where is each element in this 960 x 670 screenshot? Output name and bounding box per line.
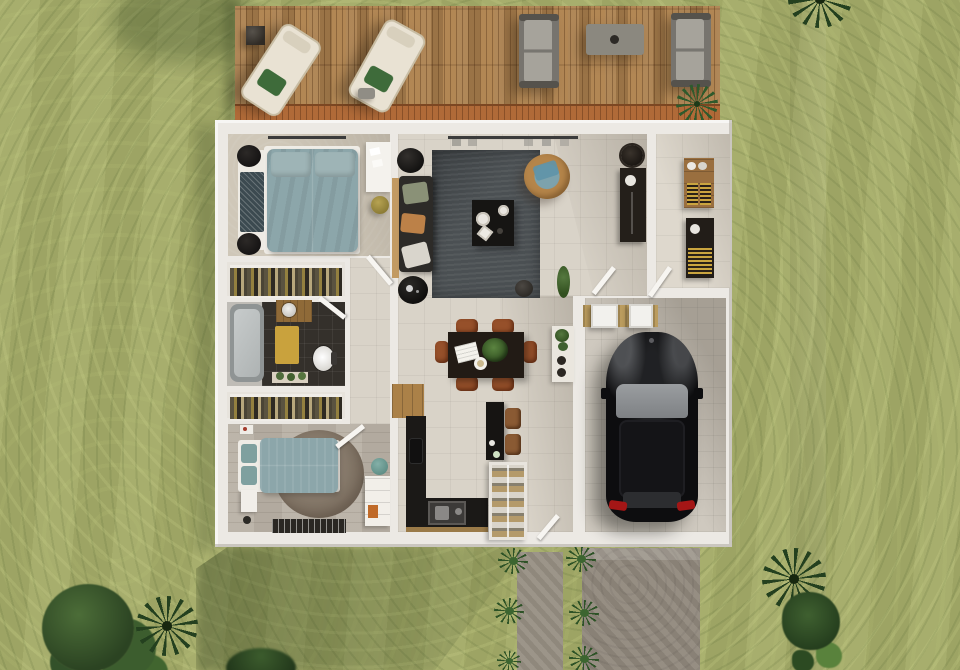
dresser-orange-box xyxy=(368,505,378,518)
plant-centerpiece xyxy=(482,338,508,362)
bathtub xyxy=(230,304,264,382)
bed-pillow-teal xyxy=(241,466,257,485)
car-mirror xyxy=(694,388,703,399)
sofa-arm xyxy=(519,81,559,88)
nightstand xyxy=(241,490,257,512)
grass-tuft xyxy=(569,600,599,626)
dining-chair xyxy=(456,376,478,391)
shelf-item xyxy=(687,162,696,170)
pouf-teal xyxy=(371,458,388,475)
car-windshield xyxy=(616,384,688,418)
tray-round xyxy=(498,205,509,216)
bar-stool xyxy=(505,434,521,455)
patterned-throw xyxy=(240,172,264,232)
car-mirror xyxy=(601,388,610,399)
curtain-folds xyxy=(452,139,461,146)
toilet xyxy=(313,346,334,371)
round-nightstand xyxy=(237,145,261,167)
island-decor xyxy=(493,451,500,458)
bed-duvet-teal xyxy=(260,438,338,493)
terrace-side-stool xyxy=(246,26,265,45)
grass-tuft xyxy=(566,546,596,572)
storage-box xyxy=(629,304,653,328)
woven-basket xyxy=(687,183,698,205)
stove-knob xyxy=(455,508,462,515)
hanging-clothes-rail xyxy=(230,394,342,421)
palm-bottom-left xyxy=(136,596,198,656)
car-antenna xyxy=(649,338,654,343)
outdoor-sofa xyxy=(519,14,559,88)
kitchen-sink xyxy=(409,438,423,464)
dresser-white xyxy=(365,476,390,526)
outdoor-coffee-table xyxy=(586,24,644,55)
lounger-pillow-green xyxy=(256,67,288,97)
console-item xyxy=(557,368,566,377)
dining-chair xyxy=(492,376,514,391)
round-nightstand xyxy=(237,233,261,255)
grass-tuft xyxy=(498,548,528,574)
hallway-floor xyxy=(350,258,390,424)
curtain-rail xyxy=(268,136,346,139)
console-plant xyxy=(558,342,568,351)
bath-mat-yellow xyxy=(275,326,299,364)
curtain-rail xyxy=(448,136,578,139)
sofa-pillow-sage xyxy=(402,181,430,204)
console-strip-wood xyxy=(392,178,399,278)
bed-pillow xyxy=(271,152,311,177)
terrace-tray xyxy=(358,88,375,99)
round-side-table xyxy=(398,276,428,304)
floor-plant xyxy=(557,266,570,298)
sink-round xyxy=(282,303,296,317)
wall-art xyxy=(240,425,253,434)
bar-stool xyxy=(505,408,521,429)
window-vent xyxy=(272,519,346,533)
pouf-olive xyxy=(371,196,389,214)
shelf-item xyxy=(698,162,707,170)
glass-pantry-cabinet xyxy=(489,462,527,540)
sofa-pillow-rust xyxy=(400,213,426,234)
cabinet-bowl xyxy=(690,224,700,234)
plate xyxy=(474,357,487,370)
woven-basket xyxy=(688,248,712,274)
island-decor xyxy=(489,440,495,446)
rattan-armchair xyxy=(524,154,570,199)
grass-tuft xyxy=(494,598,524,624)
black-car xyxy=(606,332,698,522)
console-item xyxy=(557,356,566,365)
floor-plan-render xyxy=(0,0,960,670)
kitchen-baseboard xyxy=(406,527,488,532)
tree-cluster-bottom-left xyxy=(42,584,134,670)
bench-plants xyxy=(276,372,284,380)
bed-pillow xyxy=(315,152,355,177)
grass-tuft xyxy=(569,646,599,670)
pouf-dark xyxy=(515,280,533,297)
console-bowl xyxy=(625,175,636,186)
woven-basket xyxy=(700,183,711,205)
dining-chair xyxy=(523,341,537,363)
fern-bottom-right xyxy=(782,592,840,650)
dining-chair xyxy=(435,341,449,363)
outdoor-sofa xyxy=(671,13,711,87)
terrace-potted-palm xyxy=(676,84,718,124)
car-rear-window xyxy=(623,492,681,508)
driveway-strip xyxy=(582,548,700,670)
kitchen-wood-cabinet xyxy=(392,384,424,418)
console-handle xyxy=(631,192,633,234)
grass-tuft xyxy=(497,651,521,670)
table-item xyxy=(497,228,503,234)
hanging-clothes-rail xyxy=(230,265,342,298)
console-plant xyxy=(555,329,569,342)
nightstand-item xyxy=(243,516,251,524)
storage-box xyxy=(591,304,618,328)
sofa-cushions xyxy=(676,19,704,81)
bed-pillow-teal xyxy=(241,444,257,463)
car-roof xyxy=(619,420,685,498)
round-mirror xyxy=(621,145,643,166)
driveway-apron xyxy=(582,548,700,560)
sofa-cushions xyxy=(524,20,552,82)
round-side-table xyxy=(397,148,424,173)
